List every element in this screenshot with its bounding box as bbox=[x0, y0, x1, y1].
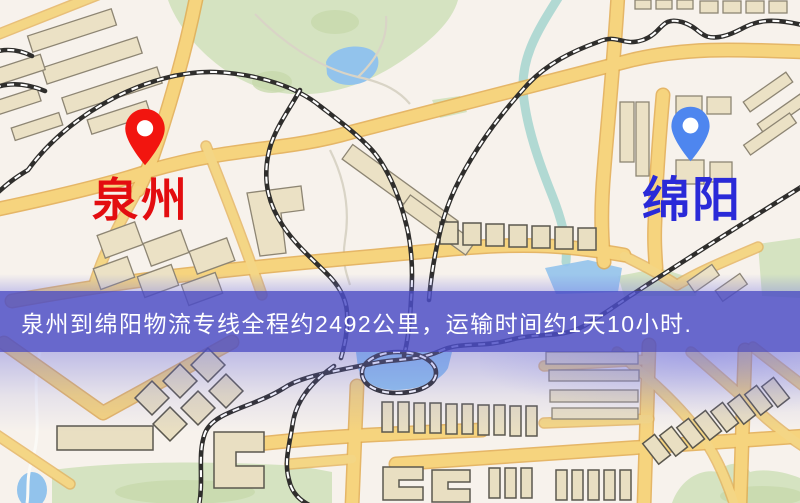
origin-pin-shape bbox=[125, 109, 164, 165]
banner-glow-top bbox=[0, 274, 800, 291]
banner-glow-right bbox=[480, 352, 800, 447]
destination-pin-shape bbox=[671, 107, 709, 162]
map-screenshot: 泉州 绵阳 泉州到绵阳物流专线全程约2492公里，运输时间约1天10小时. bbox=[0, 0, 800, 503]
route-info-text: 泉州到绵阳物流专线全程约2492公里，运输时间约1天10小时. bbox=[0, 305, 692, 339]
destination-pin-icon bbox=[667, 104, 714, 164]
origin-label: 泉州 bbox=[92, 178, 190, 224]
destination-label: 绵阳 bbox=[642, 177, 742, 225]
route-info-banner: 泉州到绵阳物流专线全程约2492公里，运输时间约1天10小时. bbox=[0, 291, 800, 352]
origin-pin-icon bbox=[121, 106, 169, 168]
